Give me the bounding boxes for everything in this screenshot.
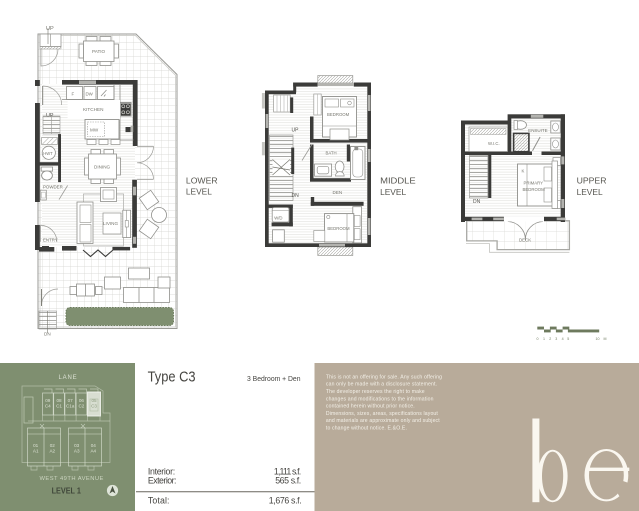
svg-text:DECK: DECK — [519, 238, 531, 243]
svg-text:W.I.C.: W.I.C. — [488, 141, 500, 146]
svg-text:07: 07 — [68, 398, 74, 403]
svg-text:This is not an offering for sa: This is not an offering for sale. Any su… — [326, 374, 442, 380]
svg-text:LEVEL: LEVEL — [380, 187, 406, 197]
svg-text:03: 03 — [74, 443, 80, 448]
svg-text:05: 05 — [91, 398, 97, 403]
svg-text:A4: A4 — [90, 449, 96, 454]
svg-text:Total:: Total: — [148, 496, 170, 506]
svg-text:and materials are approximate: and materials are approximate only and s… — [326, 418, 440, 424]
svg-text:0: 0 — [537, 337, 539, 341]
svg-text:can only be made with a disclo: can only be made with a disclosure state… — [326, 382, 437, 388]
svg-text:BATH: BATH — [326, 151, 337, 156]
svg-text:DN: DN — [44, 332, 51, 337]
svg-text:DEN: DEN — [333, 190, 343, 195]
svg-text:DN: DN — [473, 199, 481, 205]
svg-text:A2: A2 — [49, 449, 55, 454]
svg-text:UP: UP — [46, 26, 54, 32]
svg-text:KITCHEN: KITCHEN — [83, 107, 104, 113]
svg-text:PRIMARY: PRIMARY — [524, 181, 544, 186]
svg-text:A1: A1 — [33, 449, 39, 454]
svg-text:C1: C1 — [56, 404, 62, 409]
svg-text:02: 02 — [50, 443, 56, 448]
svg-text:BEDROOM: BEDROOM — [327, 226, 350, 231]
svg-text:2: 2 — [549, 337, 551, 341]
svg-text:06: 06 — [79, 398, 85, 403]
svg-text:PATIO: PATIO — [92, 49, 106, 54]
svg-text:contained herein without prior: contained herein without prior notice. — [326, 404, 415, 410]
svg-text:BEDROOM: BEDROOM — [327, 112, 350, 117]
svg-text:F: F — [72, 92, 75, 97]
svg-text:ENSUITE: ENSUITE — [528, 128, 548, 133]
svg-text:UP: UP — [292, 128, 300, 134]
svg-text:ENTRY: ENTRY — [43, 238, 58, 243]
svg-text:DINING: DINING — [94, 165, 111, 170]
svg-text:W/D: W/D — [274, 216, 282, 221]
svg-text:Dimensions, sizes, areas, spec: Dimensions, sizes, areas, specifications… — [326, 411, 439, 417]
svg-text:M: M — [604, 337, 607, 341]
svg-text:1,676 s.f.: 1,676 s.f. — [269, 496, 302, 506]
svg-text:04: 04 — [91, 443, 97, 448]
svg-text:LEVEL: LEVEL — [186, 187, 212, 197]
svg-text:UPPER: UPPER — [577, 176, 607, 186]
svg-text:C3: C3 — [91, 404, 97, 409]
svg-text:08: 08 — [56, 398, 62, 403]
svg-text:changes and modifications to t: changes and modifications to the informa… — [326, 396, 434, 402]
svg-text:MIDDLE: MIDDLE — [380, 176, 416, 186]
svg-text:HWT: HWT — [43, 151, 53, 156]
svg-text:The developer reserves the rig: The developer reserves the right to make — [326, 389, 425, 395]
svg-text:DN: DN — [292, 193, 300, 199]
svg-text:3: 3 — [555, 337, 557, 341]
svg-text:5: 5 — [567, 337, 569, 341]
svg-text:K: K — [522, 169, 525, 174]
svg-text:LANE: LANE — [59, 375, 78, 381]
svg-text:C4: C4 — [45, 404, 51, 409]
svg-text:A3: A3 — [74, 449, 80, 454]
svg-text:BEDROOM: BEDROOM — [523, 187, 546, 192]
svg-text:01: 01 — [33, 443, 39, 448]
svg-text:to change without notice. E.&O: to change without notice. E.&O.E. — [326, 426, 407, 432]
svg-text:C1a: C1a — [66, 404, 75, 409]
svg-text:POWDER: POWDER — [43, 184, 63, 189]
svg-text:MW: MW — [90, 128, 99, 133]
svg-text:4: 4 — [562, 337, 564, 341]
svg-text:3 Bedroom + Den: 3 Bedroom + Den — [247, 374, 301, 383]
svg-text:LIVING: LIVING — [103, 221, 118, 226]
svg-text:DW: DW — [86, 92, 94, 97]
svg-text:LEVEL 1: LEVEL 1 — [52, 486, 82, 496]
svg-text:10: 10 — [596, 337, 600, 341]
svg-text:565 s.f.: 565 s.f. — [275, 475, 301, 485]
svg-text:Type C3: Type C3 — [148, 369, 196, 386]
svg-text:WEST 49TH AVENUE: WEST 49TH AVENUE — [40, 476, 104, 482]
svg-text:Exterior:: Exterior: — [148, 475, 177, 485]
svg-text:09: 09 — [45, 398, 51, 403]
svg-text:C2: C2 — [78, 404, 84, 409]
svg-text:LOWER: LOWER — [186, 176, 218, 186]
svg-text:1: 1 — [543, 337, 545, 341]
svg-text:LEVEL: LEVEL — [577, 187, 603, 197]
